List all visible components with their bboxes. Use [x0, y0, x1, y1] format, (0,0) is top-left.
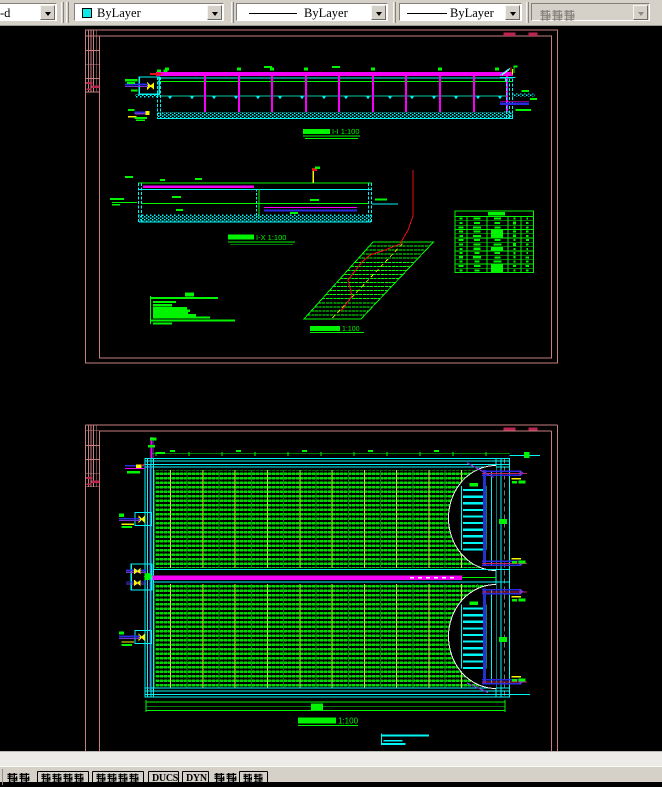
svg-text:I-X 1:100: I-X 1:100 — [256, 233, 286, 242]
svg-text:1:100: 1:100 — [338, 717, 359, 726]
svg-text:1:100: 1:100 — [342, 326, 360, 333]
svg-text:I-I 1:100: I-I 1:100 — [332, 127, 360, 136]
